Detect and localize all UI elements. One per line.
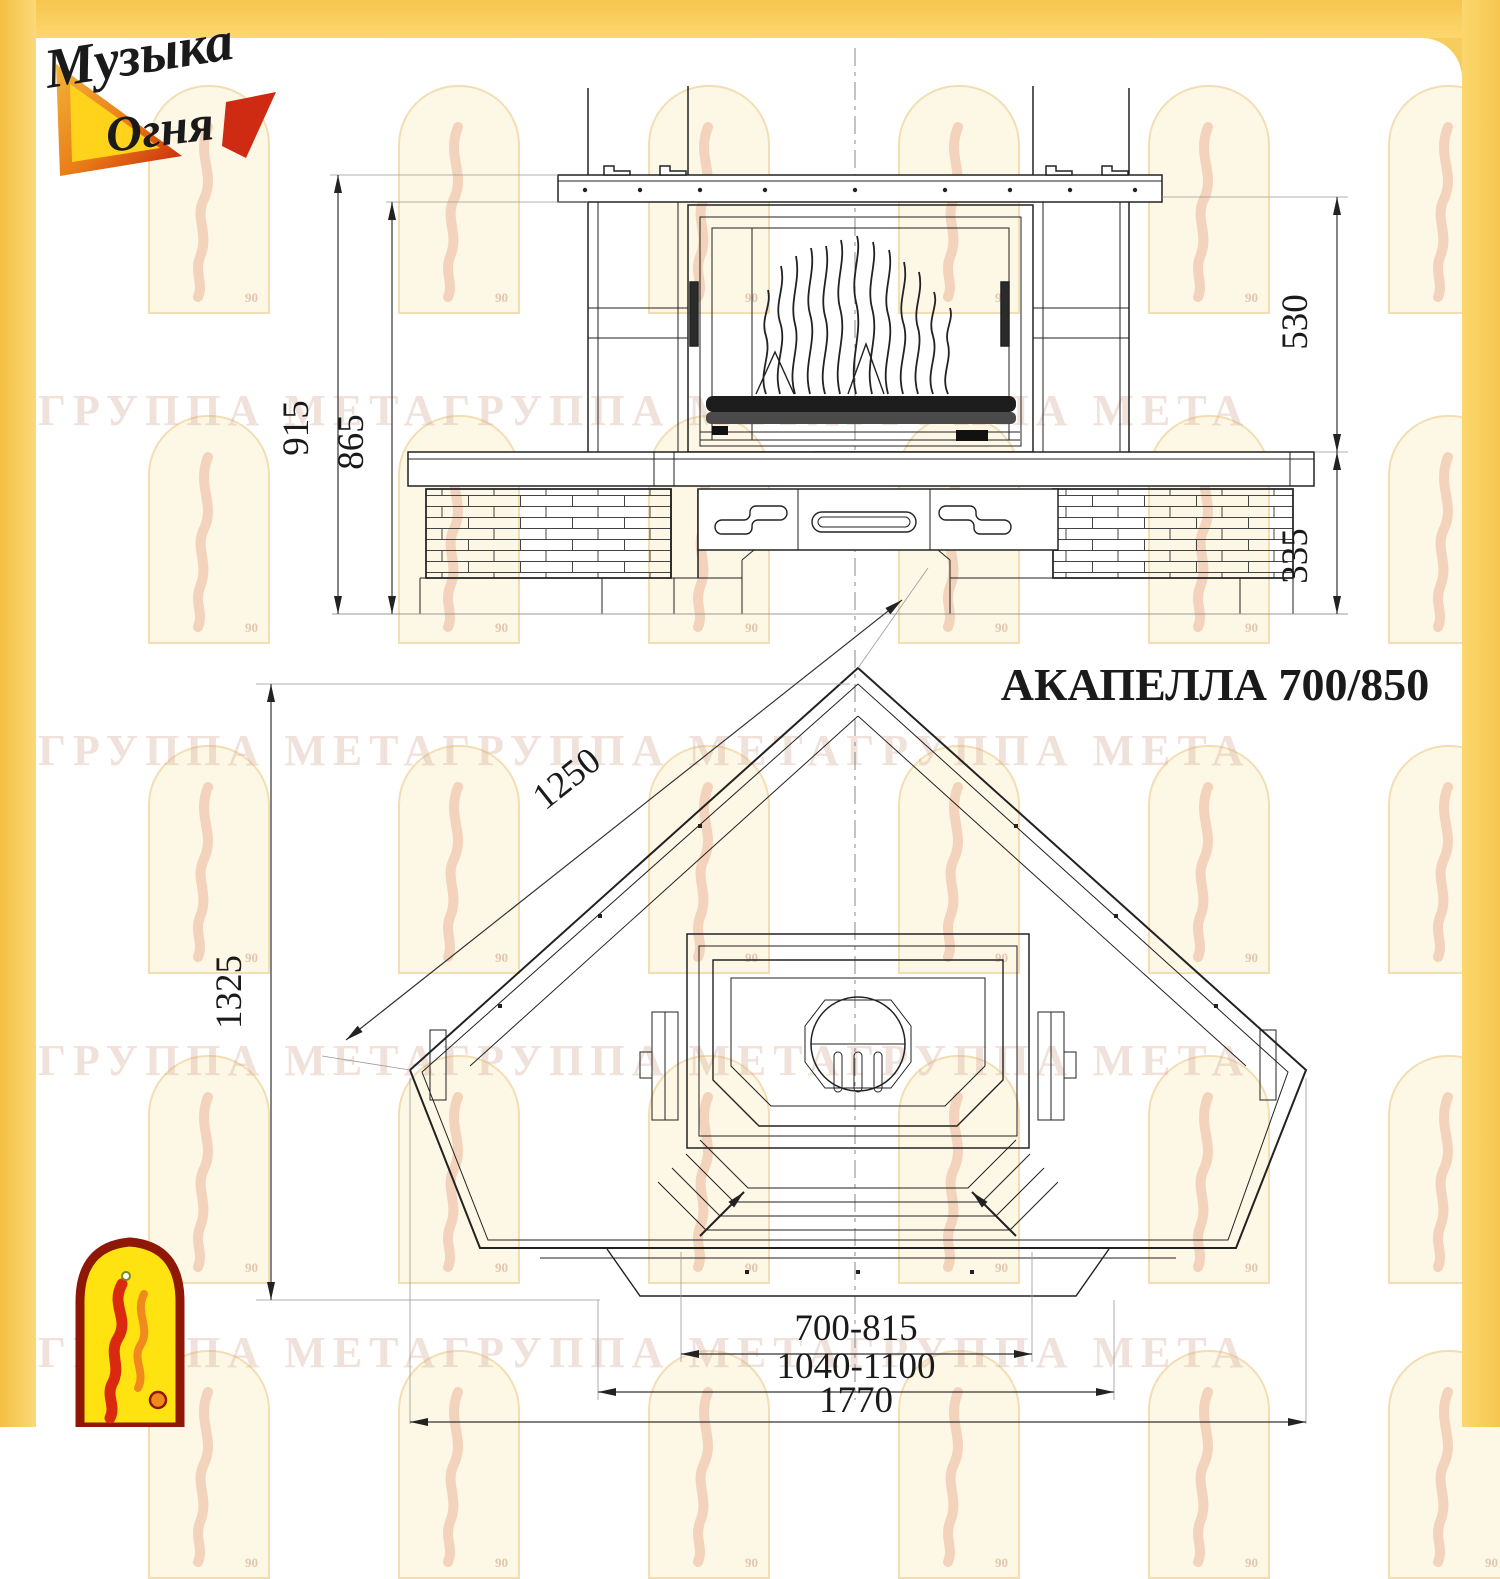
- flame-grill-icon: [756, 236, 951, 394]
- logo-word-1: Музыка: [39, 10, 237, 101]
- sun-dot-icon: [150, 1392, 166, 1408]
- front-view: [332, 48, 1348, 632]
- dim-label-side-edge: 1250: [525, 740, 608, 818]
- door-hinge-icon: [1001, 282, 1009, 346]
- frieze-panel: [698, 489, 1058, 550]
- arch-badge: 90: [745, 1555, 758, 1571]
- logo-music-of-fire: Музыка Огня: [10, 6, 310, 196]
- dim-label-firebox-width: 700-815: [794, 1308, 917, 1349]
- brick-base-left: [426, 489, 671, 578]
- dim-label-firebox-height: 865: [331, 414, 372, 470]
- grate-bar: [706, 396, 1016, 424]
- page: { "colors": { "frame_yellow": "#F8CC5C",…: [0, 0, 1500, 1427]
- dim-label-overall-width: 1770: [819, 1380, 893, 1421]
- footprint-outline: [410, 668, 1306, 1248]
- logo-flame-stripe-icon: [222, 92, 276, 158]
- flame-figure-icon: [137, 1294, 144, 1388]
- frame-left-strip: [0, 0, 36, 1427]
- logo-flame-arch: [60, 1232, 200, 1427]
- logo-word-2: Огня: [103, 94, 217, 163]
- arch-badge: 90: [1485, 1555, 1498, 1571]
- drawing-title: АКАПЕЛЛА 700/850: [1001, 659, 1430, 710]
- dim-label-upper-height: 530: [1275, 294, 1316, 350]
- dim-label-total-height: 915: [276, 400, 317, 456]
- arch-badge: 90: [1245, 1555, 1258, 1571]
- door-hinge-icon: [690, 282, 698, 346]
- frame-right-bar: [1462, 0, 1500, 1427]
- arch-badge: 90: [245, 1555, 258, 1571]
- spark-icon: [122, 1272, 130, 1280]
- brick-base-right: [1053, 489, 1293, 578]
- screw-dots: [498, 824, 1218, 1274]
- dim-label-base-height: 335: [1275, 528, 1316, 584]
- arch-badge: 90: [995, 1555, 1008, 1571]
- dim-label-depth: 1325: [209, 955, 250, 1029]
- technical-drawing: 915 865 530 335: [0, 0, 1500, 1427]
- plan-view: [410, 650, 1306, 1400]
- arch-badge: 90: [495, 1555, 508, 1571]
- mantel-shelf: [558, 166, 1162, 202]
- insert-plan: [640, 934, 1076, 1236]
- bench-slab: [408, 452, 1314, 486]
